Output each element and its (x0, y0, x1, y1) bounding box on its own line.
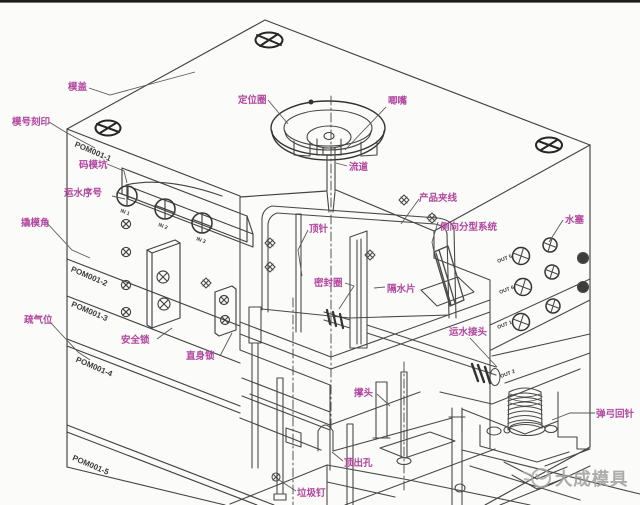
svg-text:定位圈: 定位圈 (237, 94, 267, 106)
svg-text:隔水片: 隔水片 (387, 283, 416, 295)
svg-text:产品夹线: 产品夹线 (419, 192, 458, 204)
svg-text:模盖: 模盖 (68, 81, 88, 93)
svg-text:疏气位: 疏气位 (24, 314, 53, 326)
svg-text:垃圾钉: 垃圾钉 (297, 487, 326, 499)
svg-text:顶出孔: 顶出孔 (344, 457, 373, 469)
svg-text:水塞: 水塞 (565, 214, 585, 226)
svg-text:大成模具: 大成模具 (555, 469, 628, 489)
svg-text:侧向分型系统: 侧向分型系统 (440, 221, 498, 233)
svg-text:直身锁: 直身锁 (186, 350, 215, 362)
svg-text:唧嘴: 唧嘴 (388, 95, 408, 107)
svg-text:运水序号: 运水序号 (64, 187, 103, 199)
svg-text:运水接头: 运水接头 (449, 326, 488, 338)
svg-text:流道: 流道 (349, 161, 369, 173)
svg-text:撑头: 撑头 (354, 387, 374, 399)
svg-text:安全锁: 安全锁 (121, 334, 150, 346)
svg-text:顶针: 顶针 (309, 223, 329, 235)
svg-text:撬模角: 撬模角 (21, 217, 50, 229)
svg-text:模号刻印: 模号刻印 (12, 116, 50, 128)
svg-text:弹弓回针: 弹弓回针 (596, 408, 635, 420)
svg-text:密封圈: 密封圈 (313, 277, 343, 289)
